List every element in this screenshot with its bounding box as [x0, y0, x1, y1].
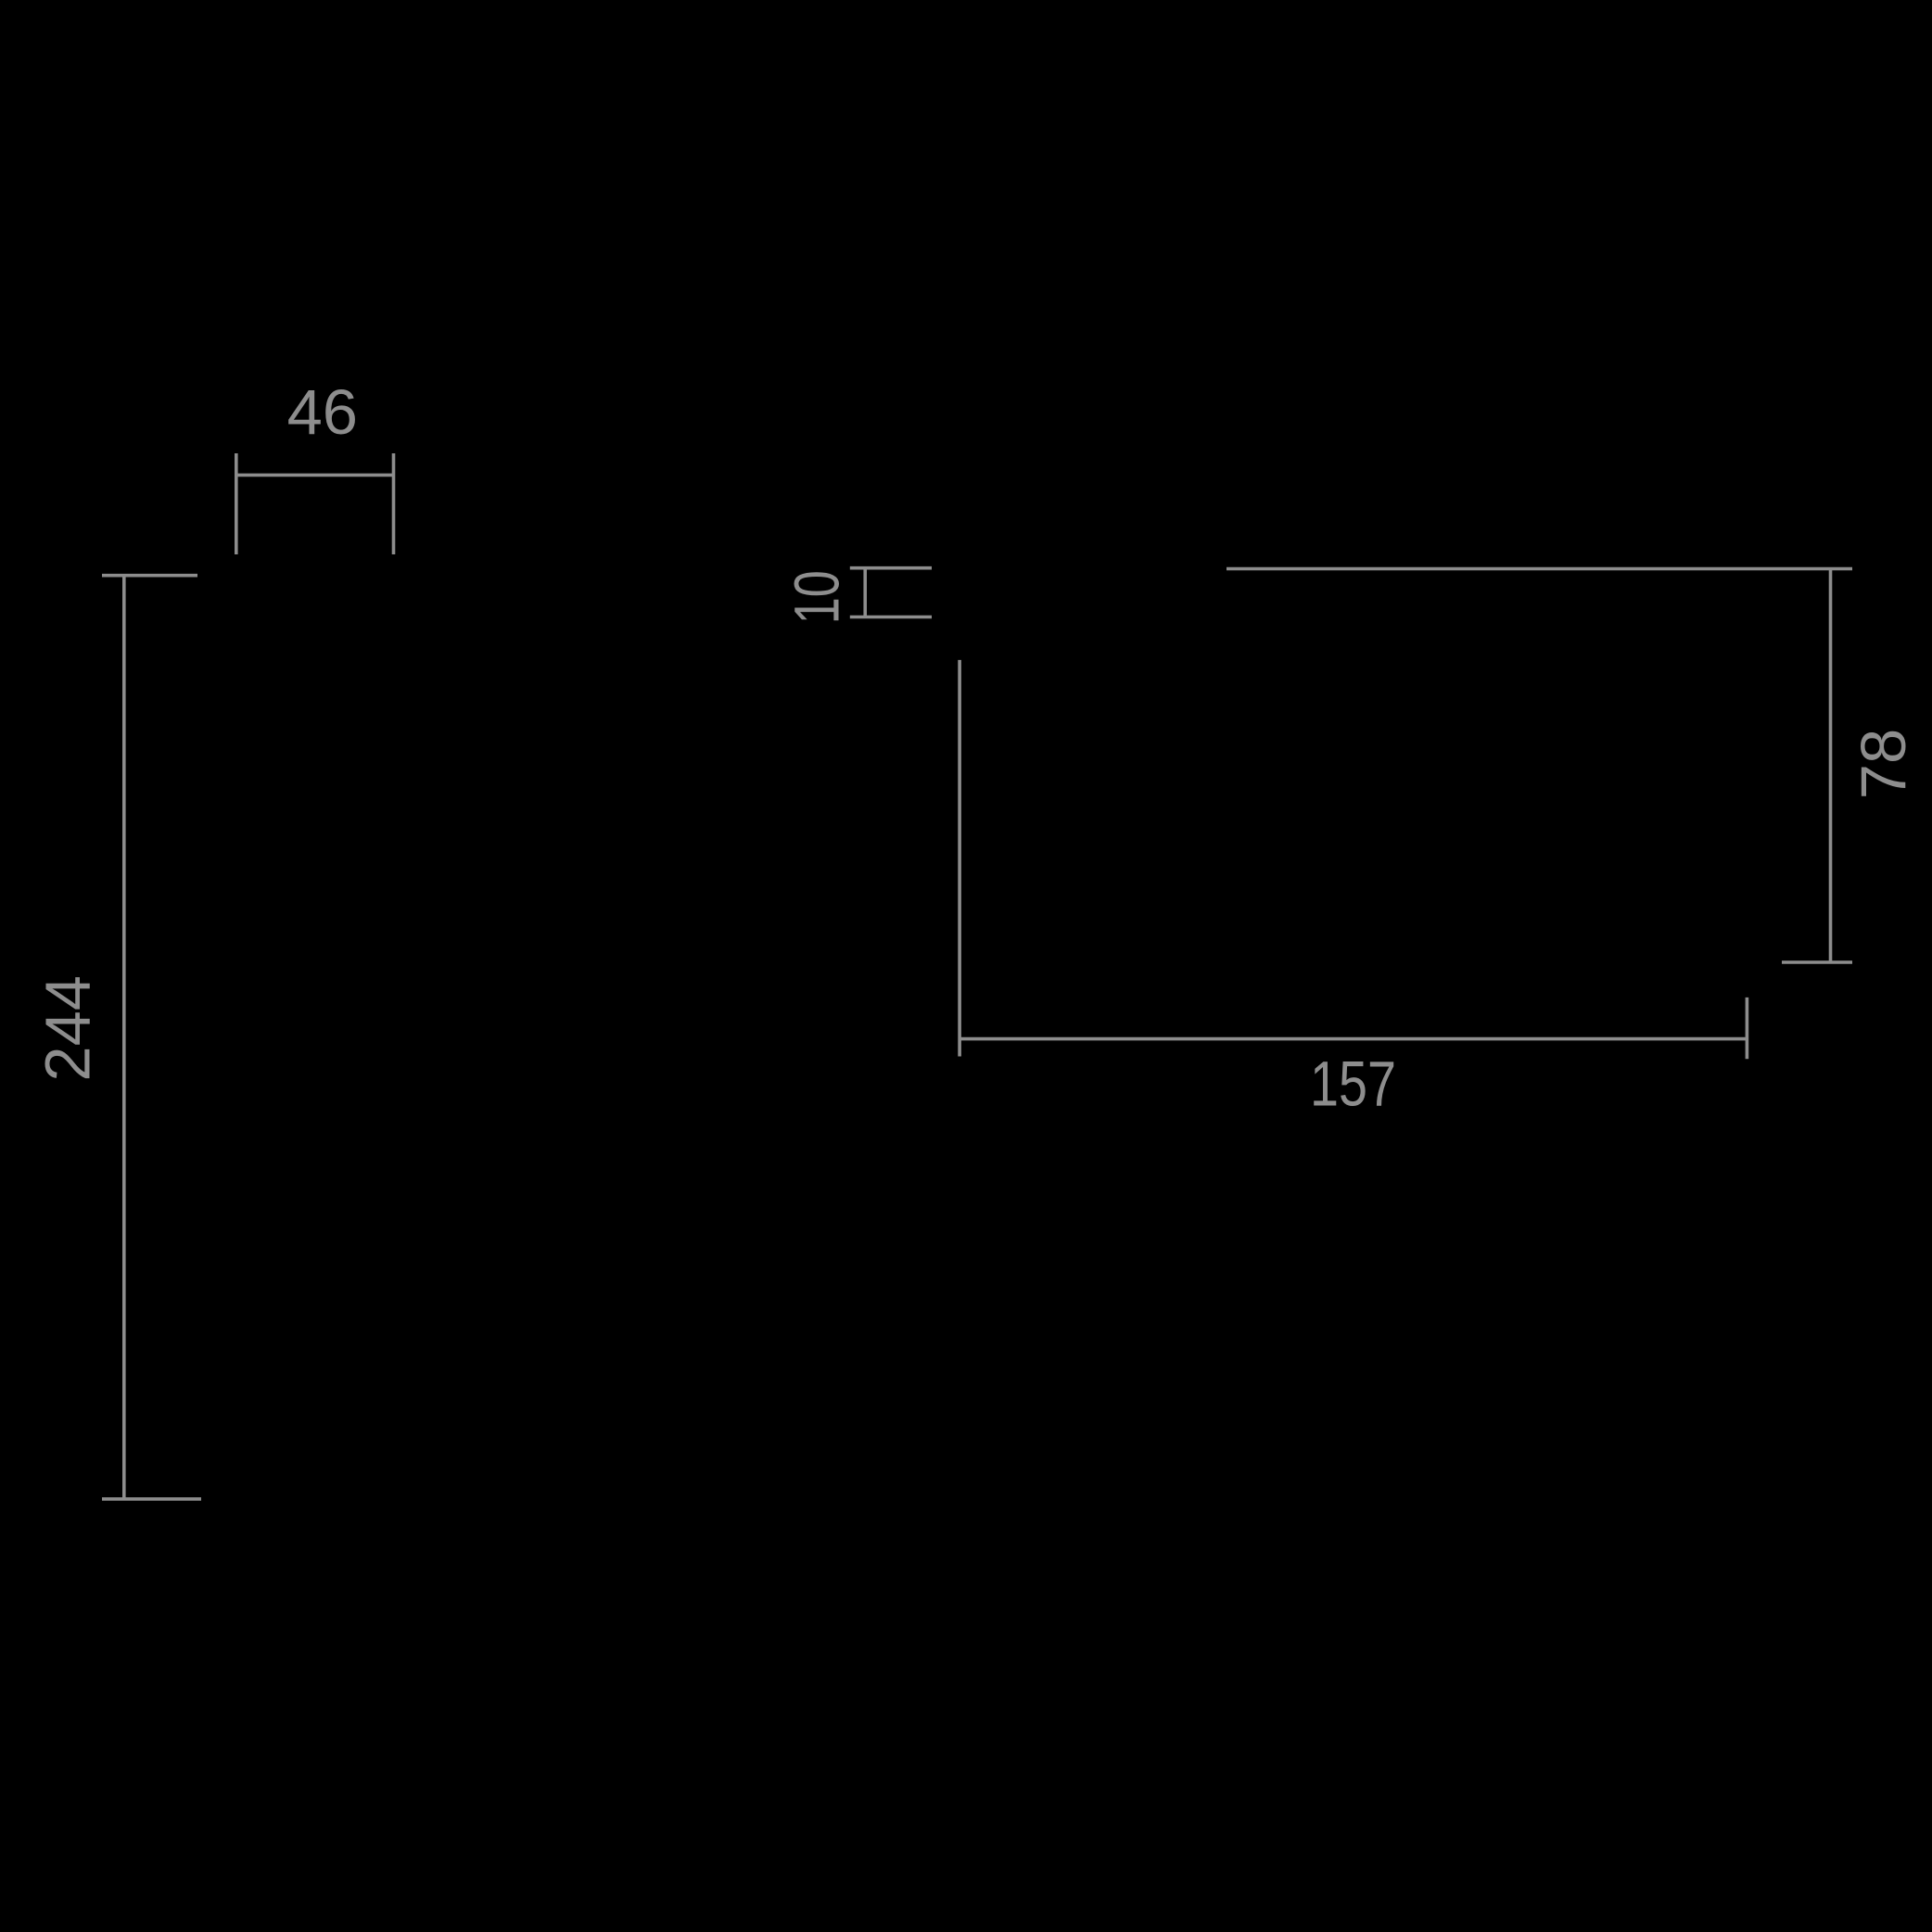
svg-text:10: 10 — [782, 570, 853, 624]
svg-text:46: 46 — [287, 376, 358, 448]
svg-text:78: 78 — [1848, 729, 1919, 799]
svg-text:157: 157 — [1310, 1049, 1396, 1120]
svg-text:244: 244 — [32, 975, 104, 1082]
